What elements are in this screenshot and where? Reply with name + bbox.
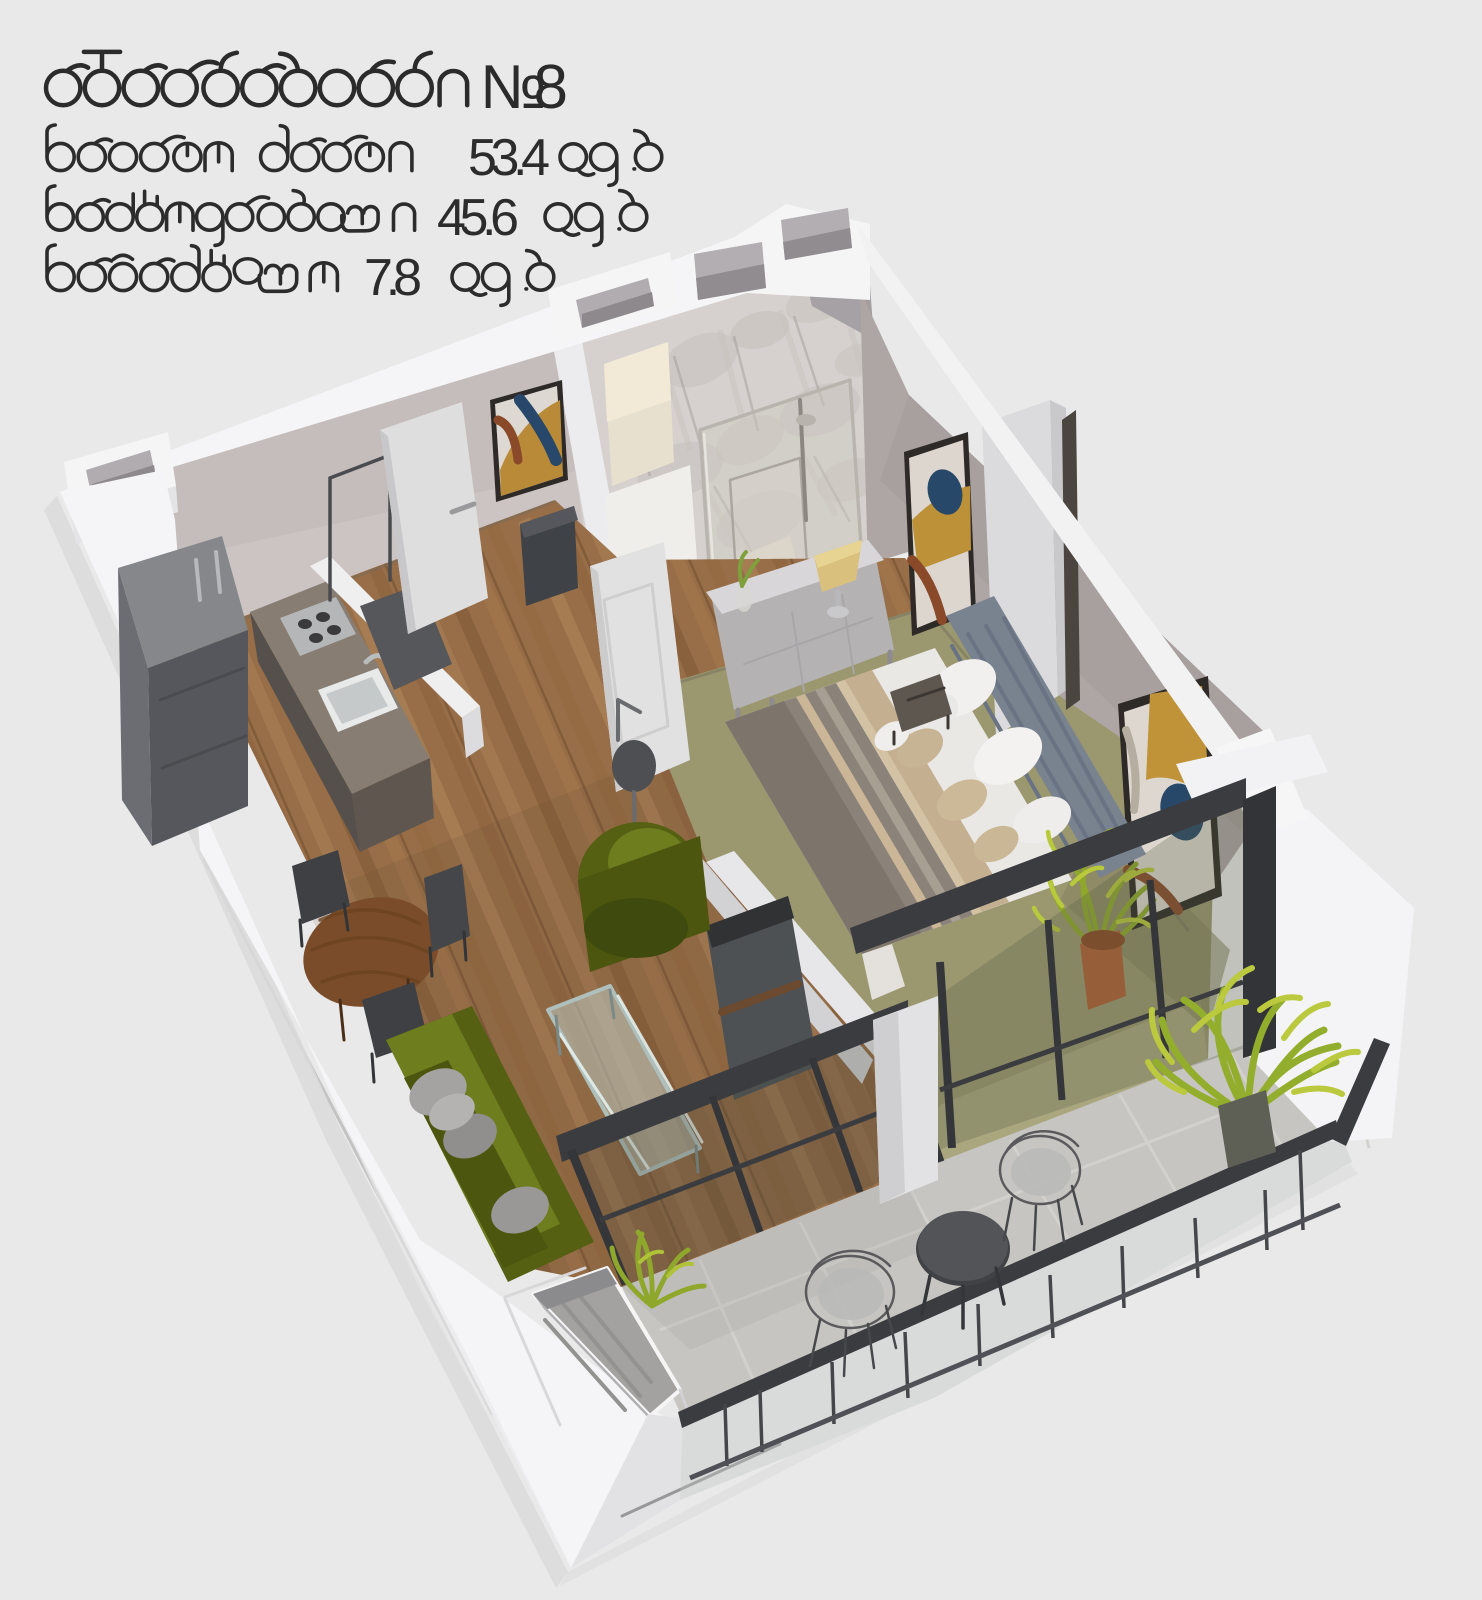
svg-text:53.4: 53.4 — [468, 129, 550, 187]
svg-text:№8: №8 — [480, 53, 568, 122]
svg-text:45.6: 45.6 — [437, 189, 519, 247]
svg-text:7.8: 7.8 — [364, 249, 422, 307]
